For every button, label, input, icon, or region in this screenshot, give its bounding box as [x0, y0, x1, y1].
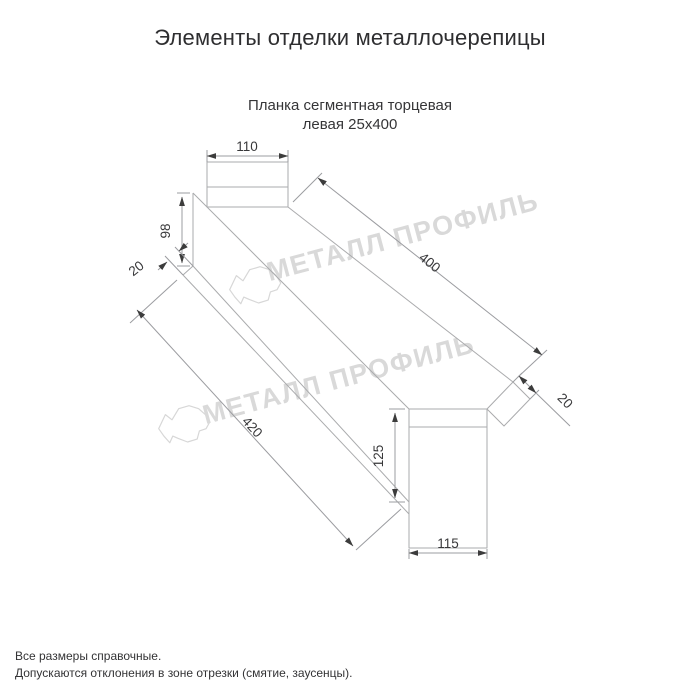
part-near-tab	[207, 162, 288, 207]
dim-98-label: 98	[158, 223, 173, 238]
part-hem-line	[183, 275, 409, 514]
footer-notes: Все размеры справочные. Допускаются откл…	[15, 648, 352, 682]
dim-110-label: 110	[236, 139, 258, 154]
watermark-text-1: МЕТАЛЛ ПРОФИЛЬ	[263, 186, 542, 288]
part-far-flange	[487, 382, 530, 426]
dim-115-label: 115	[437, 536, 459, 551]
dim-125-label: 125	[371, 445, 386, 468]
dim-400-label: 400	[416, 250, 443, 276]
ext-line	[130, 280, 177, 323]
dim-20-far-label: 20	[555, 390, 576, 411]
dim-arrow-20-near	[179, 243, 188, 251]
watermark-text-2: МЕТАЛЛ ПРОФИЛЬ	[199, 329, 478, 431]
technical-drawing: МЕТАЛЛ ПРОФИЛЬ МЕТАЛЛ ПРОФИЛЬ 110	[0, 0, 700, 700]
part-hem-near-edge	[183, 266, 193, 275]
dim-20-near-label: 20	[126, 258, 147, 279]
ext-line	[518, 350, 547, 377]
part-far-tab	[409, 409, 487, 548]
footer-note-line1: Все размеры справочные.	[15, 648, 352, 665]
footer-note-line2: Допускаются отклонения в зоне отрезки (с…	[15, 665, 352, 682]
dim-arrow-20-near	[158, 262, 167, 270]
ext-line	[293, 173, 322, 202]
watermark-layer: МЕТАЛЛ ПРОФИЛЬ МЕТАЛЛ ПРОФИЛЬ	[159, 186, 542, 443]
ext-line	[356, 509, 401, 550]
ext-line	[175, 247, 193, 266]
